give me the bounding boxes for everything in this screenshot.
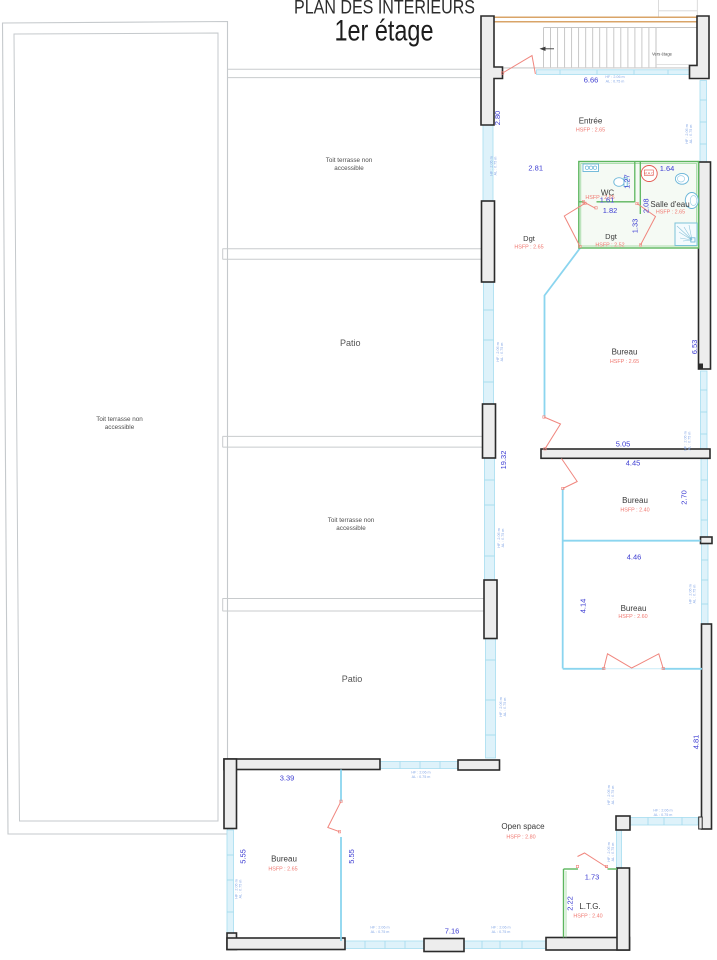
svg-text:L.T.G.: L.T.G. [579,902,600,911]
svg-text:accessible: accessible [105,424,135,431]
svg-text:5.55: 5.55 [347,849,356,864]
svg-text:1er étage: 1er étage [335,14,434,47]
svg-text:Patio: Patio [342,674,363,684]
svg-text:HSFP : 2.65: HSFP : 2.65 [576,128,605,134]
svg-text:accessible: accessible [334,165,364,172]
svg-text:accessible: accessible [336,525,366,532]
svg-text:1.82: 1.82 [603,206,618,215]
svg-text:1.64: 1.64 [660,164,675,173]
svg-text:5.55: 5.55 [239,849,248,864]
svg-text:Salle d'eau: Salle d'eau [650,200,689,209]
svg-text:1.33: 1.33 [631,219,640,234]
svg-text:Open space: Open space [501,822,545,831]
svg-text:AL : 0.75 m: AL : 0.75 m [371,930,390,934]
svg-text:7.16: 7.16 [445,927,460,936]
svg-text:HF : 2.06 m: HF : 2.06 m [653,809,672,813]
svg-text:HSFP : 2.65: HSFP : 2.65 [656,210,685,216]
svg-text:2.70: 2.70 [680,490,689,505]
svg-text:Dgt: Dgt [605,232,618,241]
svg-text:6.53: 6.53 [690,340,699,355]
svg-text:1.73: 1.73 [585,873,600,882]
svg-text:AL : 0.75 m: AL : 0.75 m [501,529,505,548]
svg-text:HSFP : 2.65: HSFP : 2.65 [610,359,639,365]
svg-text:4.81: 4.81 [692,735,701,750]
svg-text:AL : 0.75 m: AL : 0.75 m [503,698,507,717]
svg-text:HF : 2.06 m: HF : 2.06 m [370,926,389,930]
svg-text:AL : 0.75 m: AL : 0.75 m [688,432,692,451]
svg-text:1.61: 1.61 [600,196,615,205]
svg-text:Bureau: Bureau [621,604,647,613]
svg-text:Toit terrasse non: Toit terrasse non [96,416,143,423]
svg-text:Bureau: Bureau [612,348,638,357]
svg-text:2.22: 2.22 [566,896,575,911]
svg-text:HF : 2.06 m: HF : 2.06 m [491,926,510,930]
svg-text:6.66: 6.66 [584,76,599,85]
svg-text:1.27: 1.27 [623,174,632,189]
svg-text:HSFP : 2.65: HSFP : 2.65 [514,245,543,251]
svg-text:HSFP : 2.40: HSFP : 2.40 [620,508,649,514]
svg-text:Bureau: Bureau [622,496,648,505]
svg-text:2.81: 2.81 [528,164,543,173]
svg-text:2.80: 2.80 [493,111,502,126]
svg-text:HSFP : 2.65: HSFP : 2.65 [268,867,297,873]
svg-text:4.14: 4.14 [579,599,588,614]
svg-text:AL : 0.75 m: AL : 0.75 m [239,880,243,899]
svg-text:19.32: 19.32 [499,451,508,470]
svg-text:HSFP : 2.80: HSFP : 2.80 [506,835,535,841]
svg-text:AL : 0.75 m: AL : 0.75 m [606,80,625,84]
svg-text:AL : 0.75 m: AL : 0.75 m [494,157,498,176]
svg-text:AL : 0.75 m: AL : 0.75 m [500,343,504,362]
svg-text:3.39: 3.39 [280,774,295,783]
svg-text:Patio: Patio [340,338,361,348]
svg-text:AL : 0.75 m: AL : 0.75 m [654,813,673,817]
svg-text:Vers étage: Vers étage [652,52,673,57]
svg-text:Toit terrasse non: Toit terrasse non [328,517,375,524]
svg-text:AL : 0.75 m: AL : 0.75 m [611,843,615,862]
svg-text:Entrée: Entrée [579,117,603,126]
svg-text:5.05: 5.05 [616,440,631,449]
svg-text:2.08: 2.08 [642,198,651,213]
svg-text:Bureau: Bureau [271,855,297,864]
svg-text:AL : 0.75 m: AL : 0.75 m [412,775,431,779]
svg-text:AL : 0.75 m: AL : 0.75 m [611,786,615,805]
svg-text:M.A.C: M.A.C [644,171,654,175]
svg-text:4.46: 4.46 [627,553,642,562]
svg-text:AL : 0.75 m: AL : 0.75 m [492,930,511,934]
svg-text:AL : 0.75 m: AL : 0.75 m [693,585,697,604]
svg-text:HF : 2.06 m: HF : 2.06 m [605,75,624,79]
svg-text:Toit terrasse non: Toit terrasse non [326,157,373,164]
svg-text:HSFP : 2.60: HSFP : 2.60 [618,614,647,620]
svg-text:AL : 0.75 m: AL : 0.75 m [689,125,693,144]
svg-text:HSFP : 2.52: HSFP : 2.52 [595,243,624,249]
svg-text:HSFP : 2.40: HSFP : 2.40 [573,914,602,920]
svg-text:4.45: 4.45 [626,459,641,468]
svg-text:HF : 2.06 m: HF : 2.06 m [411,771,430,775]
svg-text:Dgt: Dgt [523,234,536,243]
